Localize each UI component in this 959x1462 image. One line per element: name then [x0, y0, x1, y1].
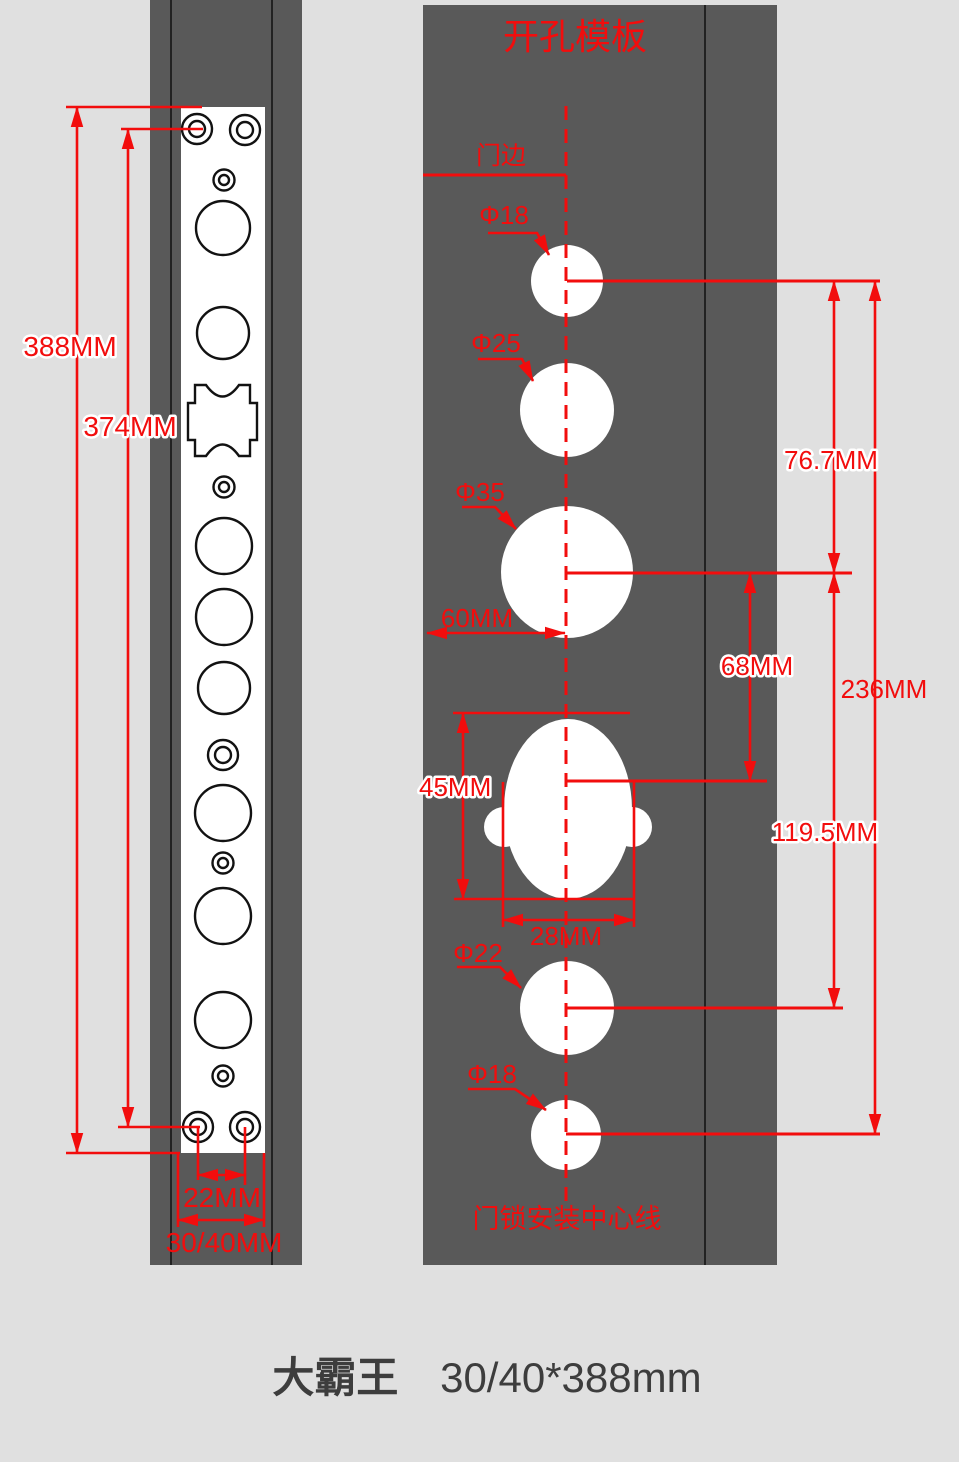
left-door-section: 388MM 374MM 22MM 30/40MM — [23, 0, 302, 1265]
dim-3040-label: 30/40MM — [166, 1227, 283, 1258]
dim-374-label: 374MM — [83, 411, 176, 442]
dim-236-label: 236MM — [841, 674, 928, 704]
right-template-section: 开孔模板 门边 Φ18 Φ25 Φ35 Φ22 Φ18 60MM 45MM 28… — [419, 5, 927, 1265]
door-edge-label: 门边 — [476, 142, 526, 170]
dim-22-label: 22MM — [183, 1182, 261, 1213]
template-title: 开孔模板 — [503, 16, 647, 57]
diagram-canvas: 388MM 374MM 22MM 30/40MM — [0, 0, 959, 1462]
dim-1195-label: 119.5MM — [772, 817, 878, 847]
dim-60-label: 60MM — [441, 603, 513, 633]
hole-label-phi18-top: Φ18 — [479, 200, 529, 230]
install-centerline-label: 门锁安装中心线 — [473, 1204, 662, 1234]
footer-title: 大霸王 30/40*388mm — [272, 1354, 701, 1401]
dim-45-label: 45MM — [419, 772, 491, 802]
dim-767-label: 76.7MM — [784, 445, 878, 475]
dim-388-label: 388MM — [23, 331, 116, 362]
drilling-template-drawing: 388MM 374MM 22MM 30/40MM — [0, 0, 959, 1462]
hole-label-phi35: Φ35 — [455, 477, 505, 507]
hole-label-phi25: Φ25 — [471, 328, 521, 358]
lock-faceplate — [181, 107, 265, 1153]
hole-label-phi22: Φ22 — [453, 938, 503, 968]
dim-68-label: 68MM — [721, 651, 793, 681]
lock-body-cutout — [504, 719, 632, 899]
dim-28-label: 28MM — [530, 921, 602, 951]
product-name: 大霸王 — [272, 1354, 398, 1401]
hole-label-phi18-bottom: Φ18 — [467, 1059, 517, 1089]
product-spec: 30/40*388mm — [440, 1354, 702, 1401]
